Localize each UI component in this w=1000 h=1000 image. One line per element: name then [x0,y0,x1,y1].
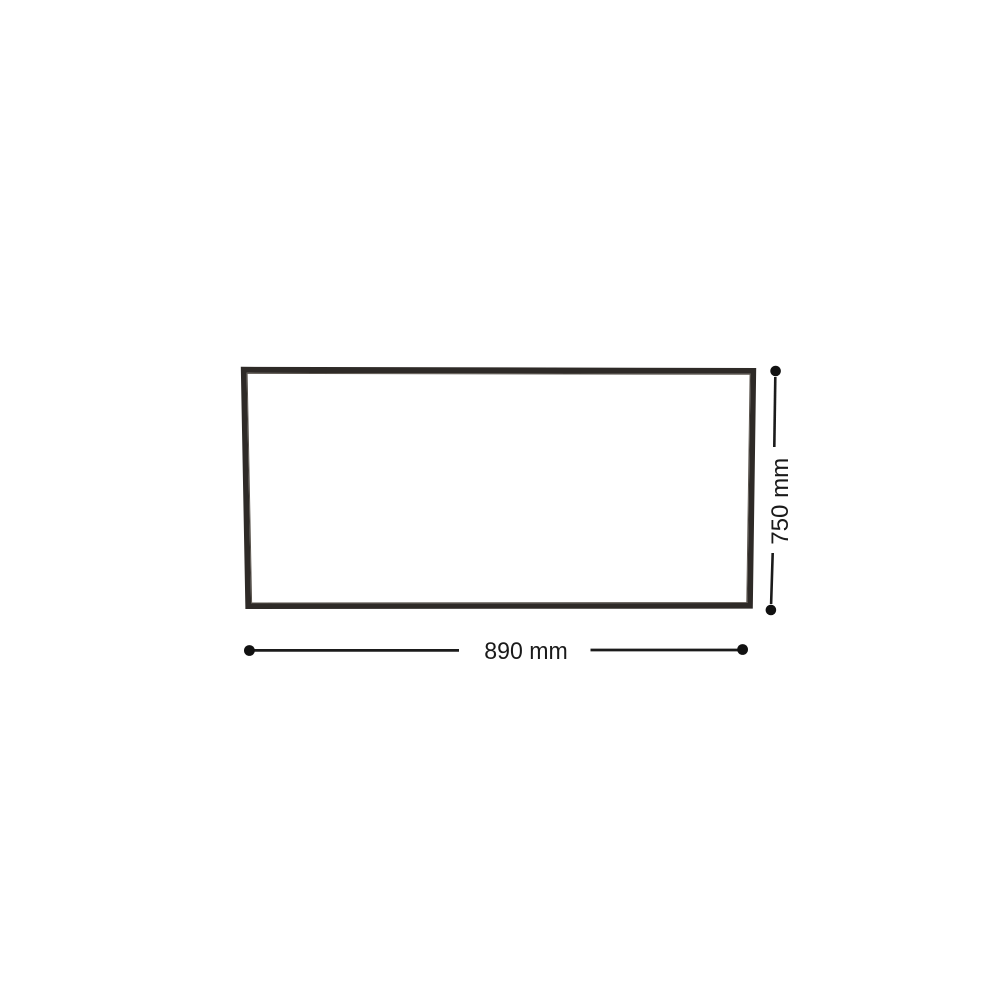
svg-text:750 mm: 750 mm [767,458,794,545]
svg-text:890 mm: 890 mm [484,638,568,665]
